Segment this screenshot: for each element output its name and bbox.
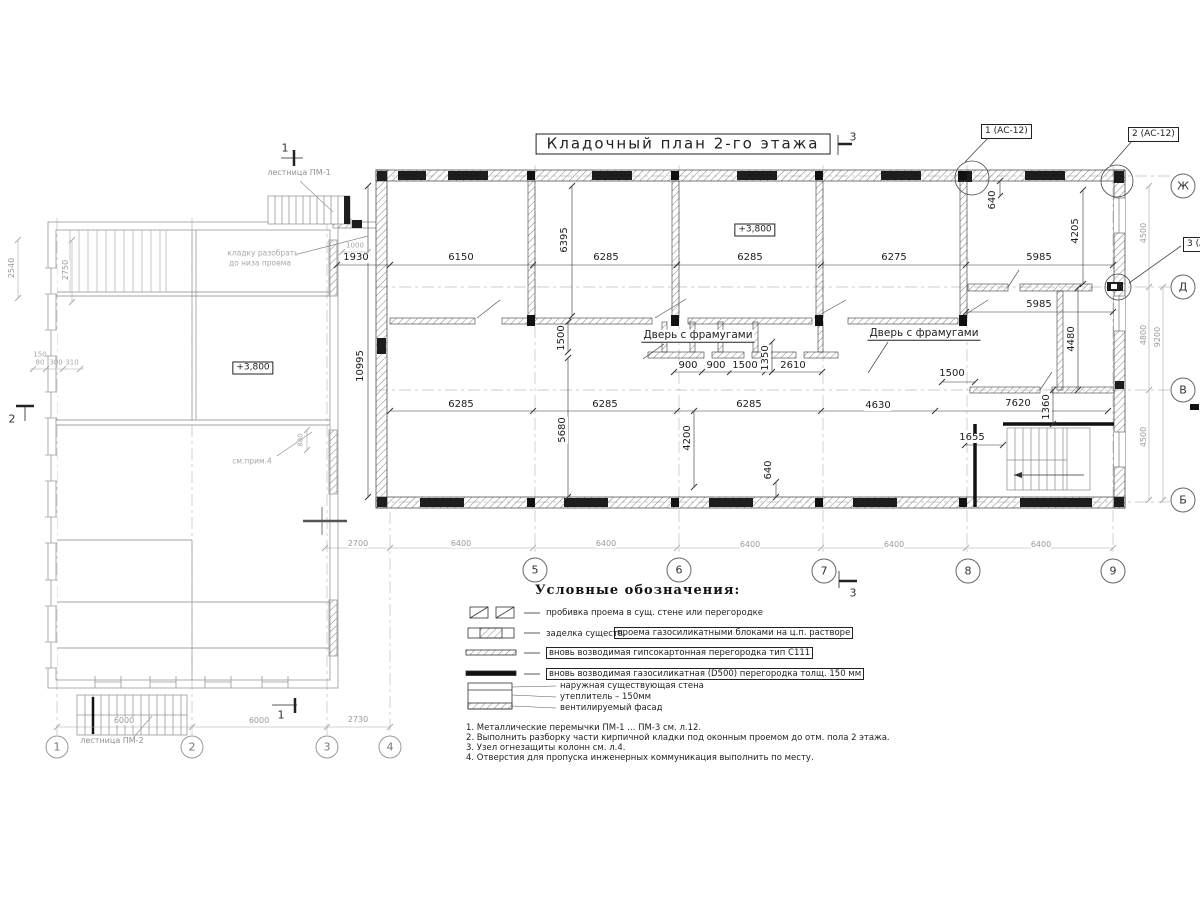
callout-1: 1 (АС-12)	[981, 124, 1032, 139]
axis-circle-d: Д	[1171, 275, 1196, 300]
dim-label: 2610	[779, 361, 806, 371]
dim-label: 1500	[731, 361, 758, 371]
dim-label: 6000	[249, 717, 269, 725]
stairs-left-building	[70, 230, 166, 292]
level-mark-main: +3,800	[734, 224, 775, 237]
dim-label: 6285	[735, 400, 762, 410]
dim-label: 900	[705, 361, 726, 371]
dim-label: 4200	[683, 424, 693, 451]
axis-circle-v: В	[1171, 378, 1196, 403]
dim-label: 6285	[591, 400, 618, 410]
legend-item-2-box: проема газосиликатными блоками на ц.п. р…	[614, 627, 853, 639]
dim-label: 4800	[1140, 325, 1148, 345]
dim-label: 6285	[592, 253, 619, 263]
left-building-windows	[45, 268, 288, 688]
dim-label: 1000	[346, 243, 364, 250]
stairs-main	[1007, 428, 1090, 490]
section-num: 1	[278, 710, 285, 721]
dim-label: 6400	[596, 540, 616, 548]
level-mark-left: +3,800	[232, 362, 273, 375]
axis-circle-2: 2	[181, 736, 204, 759]
dim-label: 5985	[1025, 300, 1052, 310]
section-num: 3	[850, 588, 857, 599]
dim-label: 6400	[884, 541, 904, 549]
note-see: см.прим.4	[232, 457, 272, 465]
dim-label: 2700	[348, 540, 368, 548]
dim-label: 6395	[560, 226, 570, 253]
door-label-left: Дверь с фрамугами	[641, 330, 754, 343]
dim-label: 9200	[1154, 327, 1162, 347]
dim-label: 80	[36, 360, 45, 367]
legend-item-3: вновь возводимая гипсокартонная перегоро…	[546, 647, 813, 659]
dim-label: 6400	[451, 540, 471, 548]
dim-label: 1350	[761, 344, 771, 371]
dim-label: 6400	[740, 541, 760, 549]
dim-label: 4205	[1071, 217, 1081, 244]
dim-label: 300	[49, 360, 62, 367]
dim-label: 6400	[1031, 541, 1051, 549]
drawing-sheet: { "drawing": { "title": "Кладочный план …	[0, 0, 1200, 900]
legend-item-3-box: вновь возводимая гипсокартонная перегоро…	[546, 647, 813, 659]
legend-heading: Условные обозначения:	[535, 583, 740, 598]
callout-marks	[955, 138, 1181, 300]
axis-circle-5: 5	[523, 558, 548, 583]
dim-label: 880	[298, 433, 305, 446]
legend-item-2-boxed: проема газосиликатными блоками на ц.п. р…	[614, 627, 853, 639]
note-demolish-1: кладку разобрать	[227, 249, 298, 257]
axis-circle-b: Б	[1171, 488, 1196, 513]
legend-item-4: вновь возводимая газосиликатная (D500) п…	[546, 668, 864, 680]
dim-label: 4500	[1140, 223, 1148, 243]
legend-wall-2: утеплитель – 150мм	[560, 692, 651, 702]
dim-label: 2750	[62, 260, 70, 280]
note-1: 1. Металлические перемычки ПМ-1 ... ПМ-3…	[466, 723, 701, 733]
dim-label: 6285	[736, 253, 763, 263]
section-num: 2	[9, 414, 16, 425]
dim-label: 150	[33, 352, 46, 359]
edge-mark	[1190, 404, 1199, 410]
section-num: 1	[282, 143, 289, 154]
dim-label: 2730	[348, 716, 368, 724]
stair-label-pm2: лестница ПМ-2	[80, 737, 143, 745]
drawing-title: Кладочный план 2-го этажа	[536, 134, 831, 155]
dim-label: 1930	[342, 253, 369, 263]
door-label-right: Дверь с фрамугами	[867, 328, 980, 341]
stairs-pm1	[268, 181, 350, 224]
dim-label: 6000	[114, 717, 134, 725]
axis-circle-9: 9	[1101, 559, 1126, 584]
axis-circle-8: 8	[956, 559, 981, 584]
note-4: 4. Отверстия для пропуска инженерных ком…	[466, 753, 814, 763]
note-demolish-2: до низа проема	[229, 259, 291, 267]
dim-label: 5680	[558, 416, 568, 443]
dim-label: 5985	[1025, 253, 1052, 263]
dim-label: 6275	[880, 253, 907, 263]
axis-circle-6: 6	[667, 558, 692, 583]
axis-circle-3: 3	[316, 736, 339, 759]
dim-label: 2540	[8, 258, 16, 278]
legend-swatches	[466, 607, 556, 709]
dim-label: 4630	[864, 401, 891, 411]
dim-label: 4480	[1067, 325, 1077, 352]
dim-label: 640	[988, 189, 998, 210]
dim-label: 900	[677, 361, 698, 371]
leader-lines	[277, 236, 888, 456]
axis-circle-4: 4	[379, 736, 402, 759]
note-3: 3. Узел огнезащиты колонн см. л.4.	[466, 743, 625, 753]
dim-label: 1500	[938, 369, 965, 379]
section-num: 3	[850, 132, 857, 143]
legend-wall-3: вентилируемый фасад	[560, 703, 662, 713]
axis-circle-7: 7	[812, 559, 837, 584]
dim-label: 640	[764, 459, 774, 480]
axis-circle-zh: Ж	[1171, 174, 1196, 199]
dim-label: 310	[65, 360, 78, 367]
axis-circle-1: 1	[46, 736, 69, 759]
legend-item-4-box: вновь возводимая газосиликатная (D500) п…	[546, 668, 864, 680]
dim-label: 1500	[557, 324, 567, 351]
callout-2: 2 (АС-12)	[1128, 127, 1179, 142]
dim-label: 7620	[1004, 399, 1031, 409]
note-2: 2. Выполнить разборку части кирпичной кл…	[466, 733, 890, 743]
legend-wall-1: наружная существующая стена	[560, 681, 704, 691]
legend-item-1: пробивка проема в сущ. стене или перегор…	[546, 608, 763, 618]
dim-label: 10995	[356, 349, 366, 383]
dim-label: 1360	[1042, 393, 1052, 420]
dim-label: 6285	[447, 400, 474, 410]
dim-label: 1655	[958, 433, 985, 443]
dim-label: 4500	[1140, 427, 1148, 447]
dim-label: 6150	[447, 253, 474, 263]
callout-3: 3 (АС-12)	[1183, 237, 1200, 252]
stair-label-pm1: лестница ПМ-1	[267, 169, 330, 177]
